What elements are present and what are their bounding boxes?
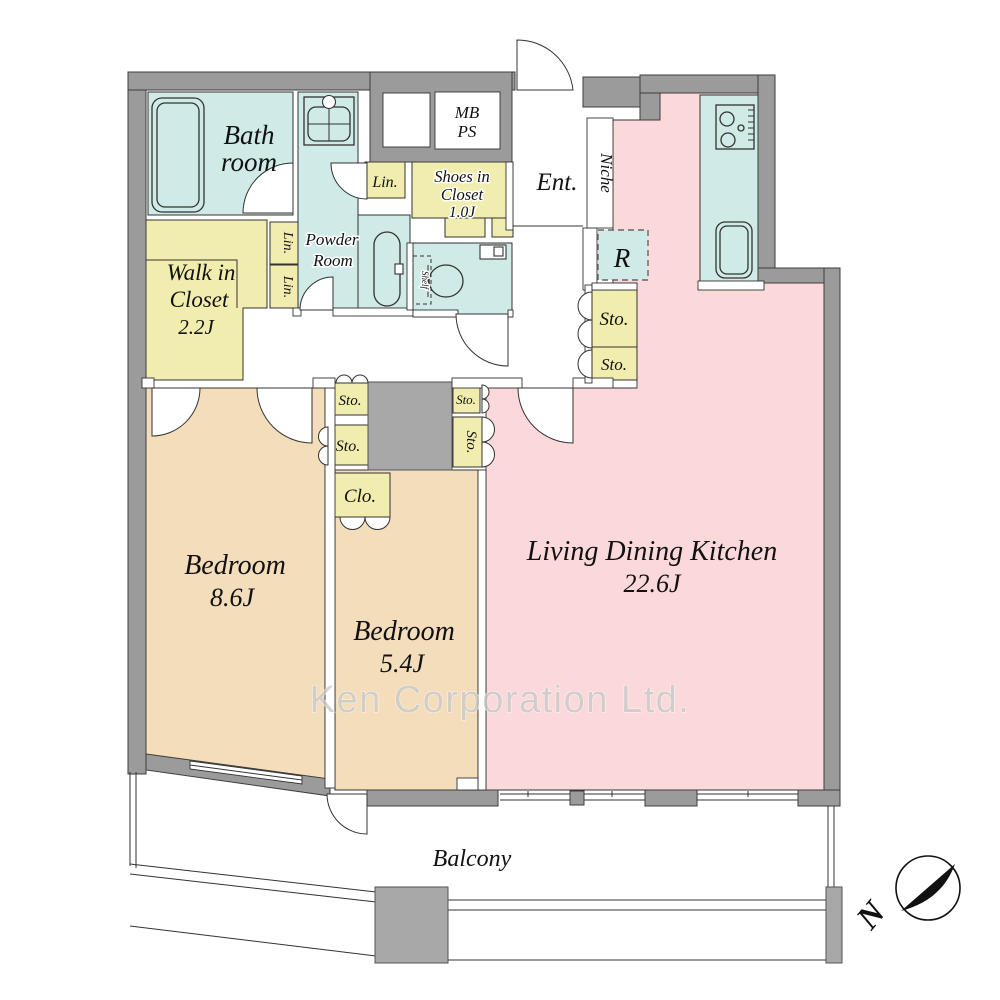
walk-in-closet-label-1: Walk in (167, 260, 236, 285)
bedroom-1-size: 8.6J (210, 583, 256, 612)
bedroom-1-label: Bedroom (184, 550, 286, 581)
storage-mid-4-label: Sto. (463, 431, 479, 454)
wall-bed2-ldk-divider (478, 470, 486, 790)
shoes-closet-size: 1.0J (449, 204, 476, 221)
compass: N (849, 856, 960, 937)
floorplan-canvas: N Bath room Powder Room Walk in Closet 2… (0, 0, 1000, 1000)
central-pillar-block (368, 382, 452, 470)
toilet-powder-divider (407, 243, 413, 310)
linen-b2-label: Lin. (280, 275, 295, 298)
wall-right (824, 268, 840, 792)
storage-entrance-1-label: Sto. (599, 309, 628, 330)
corridor-south-seg-1 (313, 378, 335, 388)
kitchen-counter-area (700, 95, 758, 283)
balcony-pillar-right (826, 887, 842, 963)
wall-bottom-ldk-pillar (645, 790, 697, 806)
entrance-label: Ent. (536, 169, 578, 196)
meter-box-label-1: MB (454, 103, 480, 122)
walk-in-closet-size: 2.2J (178, 315, 215, 339)
entrance-west-wall (506, 162, 513, 230)
kitchen-counter-ledge (698, 281, 764, 290)
meter-box-label-2: PS (457, 122, 477, 141)
linen-b1-label: Lin. (280, 231, 295, 254)
storage-mid-2-label: Sto. (336, 438, 360, 455)
powder-room-label-1: Powder (305, 230, 359, 249)
wall-kitchen-right (758, 75, 775, 275)
shoes-closet-label-2: Closet (441, 185, 484, 204)
powder-room-extension (358, 215, 410, 310)
toilet-south-seg-1 (413, 310, 458, 317)
storage-entrance-bifold (578, 292, 592, 378)
walk-in-closet-label-2: Closet (170, 287, 229, 312)
storage-mid-3-label: Sto. (456, 392, 476, 407)
bedroom-2-size: 5.4J (380, 649, 426, 678)
entrance-door (517, 40, 573, 90)
wall-bottom-mullion (570, 791, 584, 805)
balcony-label: Balcony (433, 846, 512, 872)
linen-a-label: Lin. (371, 174, 397, 191)
bedroom-2-label: Bedroom (353, 616, 455, 647)
powder-south-seg-2 (333, 308, 413, 316)
shelf-label: Shelf (420, 271, 430, 290)
wall-bottom-bed2 (367, 790, 498, 806)
wall-kitchen-top (640, 75, 775, 93)
bedroom2-balcony-door (327, 794, 367, 834)
refrigerator-label: R (613, 243, 631, 273)
bed2-bottom-notch (457, 778, 478, 790)
bathroom-label-1: Bath (224, 120, 275, 150)
compass-north-label: N (849, 894, 893, 937)
shoes-closet-label-1: Shoes in (434, 167, 489, 186)
ldk-size: 22.6J (623, 569, 682, 598)
storage-entrance-top-wall (592, 283, 637, 290)
hall-east-wall-upper (583, 228, 597, 290)
ldk-label: Living Dining Kitchen (526, 536, 777, 567)
corridor-south-seg-3 (573, 378, 613, 388)
bathroom-label-2: room (221, 147, 277, 177)
wall-top-right-of-door (583, 77, 643, 107)
storage-mid-1-label: Sto. (339, 393, 362, 409)
storage-entrance-2-label: Sto. (601, 355, 627, 374)
floorplan-svg: N Bath room Powder Room Walk in Closet 2… (0, 0, 1000, 1000)
toilet-south-seg-2 (508, 310, 513, 317)
balcony-pillar-center (375, 887, 448, 963)
closet-small-label: Clo. (344, 486, 376, 507)
niche-label: Niche (597, 152, 616, 193)
wall-left (128, 72, 146, 774)
wall-bottom-right-corner (798, 790, 840, 806)
powder-room-label-2: Room (312, 251, 353, 270)
toilet-door (456, 314, 508, 366)
watermark: Ken Corporation Ltd. (310, 679, 691, 721)
storage-mid1-bifold (336, 375, 368, 383)
meter-box-left (383, 93, 430, 147)
corridor-south-stub-left (142, 378, 154, 388)
